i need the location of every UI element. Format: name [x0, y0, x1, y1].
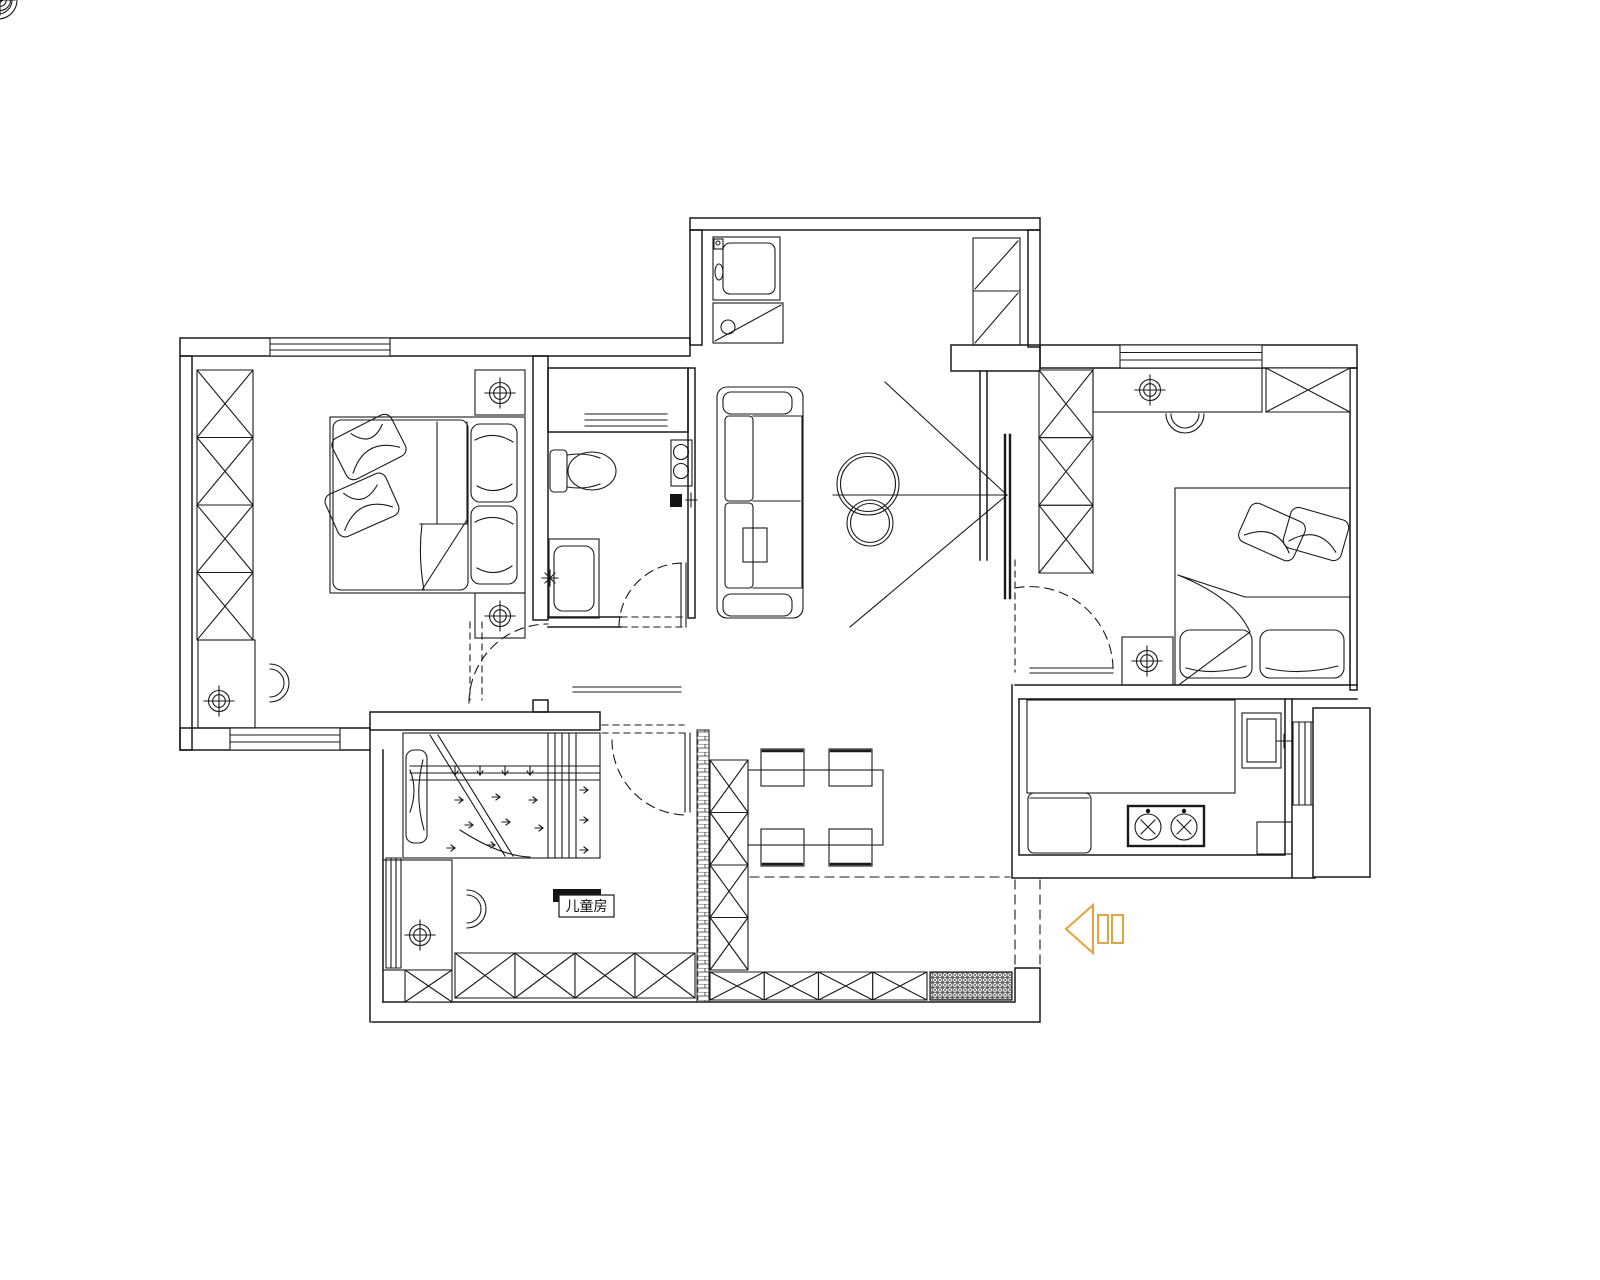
floor-plan-drawing: 儿童房: [0, 0, 1600, 1280]
tall-cabinet-icon: [973, 238, 1020, 345]
children-room: 儿童房: [383, 733, 695, 1002]
washbasin-icon: [542, 539, 599, 618]
dining-table-icon: [748, 770, 883, 845]
toilet-icon: [550, 450, 616, 492]
doormat-hatch: [930, 972, 1012, 1000]
storage-column-icon: [710, 760, 748, 970]
tv-icon: [833, 382, 1010, 627]
fridge-icon: [1028, 793, 1091, 853]
sofa-icon: [717, 387, 803, 618]
room-label-children: 儿童房: [553, 889, 614, 917]
bathroom: [542, 440, 697, 618]
wardrobe-master-icon: [197, 370, 253, 640]
nightstand-top: [475, 370, 525, 415]
children-room-label: 儿童房: [566, 898, 608, 915]
gas-stove-icon: [1128, 806, 1204, 846]
entry-direction-arrow-icon: [1066, 905, 1123, 953]
master-bedroom: [197, 370, 525, 728]
desk-master: [198, 640, 289, 728]
laundry-balcony: [713, 237, 1020, 345]
window-master-top: [270, 338, 390, 356]
windows: [230, 338, 1311, 968]
kitchen-counter: [1027, 700, 1235, 793]
door-master-bedroom: [469, 622, 548, 703]
children-bed-icon: [403, 733, 600, 858]
dresser-bedroom2: [1093, 368, 1262, 433]
kitchen-corner-cabinet: [1257, 822, 1292, 854]
children-wardrobe-icon: [405, 953, 695, 1002]
bed2-icon: [1175, 488, 1351, 685]
dining-chairs: [761, 749, 872, 866]
window-bedroom2-top: [1120, 345, 1262, 368]
window-duct: [585, 414, 667, 432]
nightstand-bedroom2: [1122, 637, 1173, 685]
floor-plan-canvas: 儿童房: [0, 0, 1600, 1280]
shoe-cabinet-row-icon: [710, 972, 927, 1000]
living-room: [717, 382, 1010, 627]
coffee-table-icon: [837, 453, 899, 546]
entry-doorway-dashes: [750, 877, 1040, 968]
dining-area: [697, 730, 1012, 1002]
laundry-sink-icon: [713, 303, 783, 343]
door-children-room: [602, 725, 690, 815]
wardrobe-bedroom2-icon: [1039, 370, 1093, 573]
wall-switch-icon: [670, 493, 697, 507]
washing-machine-icon: [713, 237, 780, 300]
window-children-left: [386, 858, 401, 968]
overhead-cabinet-icon: [1266, 368, 1350, 412]
door-bathroom: [619, 563, 686, 627]
bedroom2: [1039, 368, 1351, 685]
double-bed-icon: [322, 412, 525, 593]
brick-partition: [697, 730, 709, 1002]
washer-hookup-icon: [671, 440, 692, 486]
window-kitchen-right: [1293, 722, 1311, 805]
nightstand-bottom: [475, 593, 525, 638]
door-bedroom2: [1015, 560, 1113, 673]
window-master-bottom: [230, 728, 340, 750]
kitchen: [1027, 700, 1293, 854]
